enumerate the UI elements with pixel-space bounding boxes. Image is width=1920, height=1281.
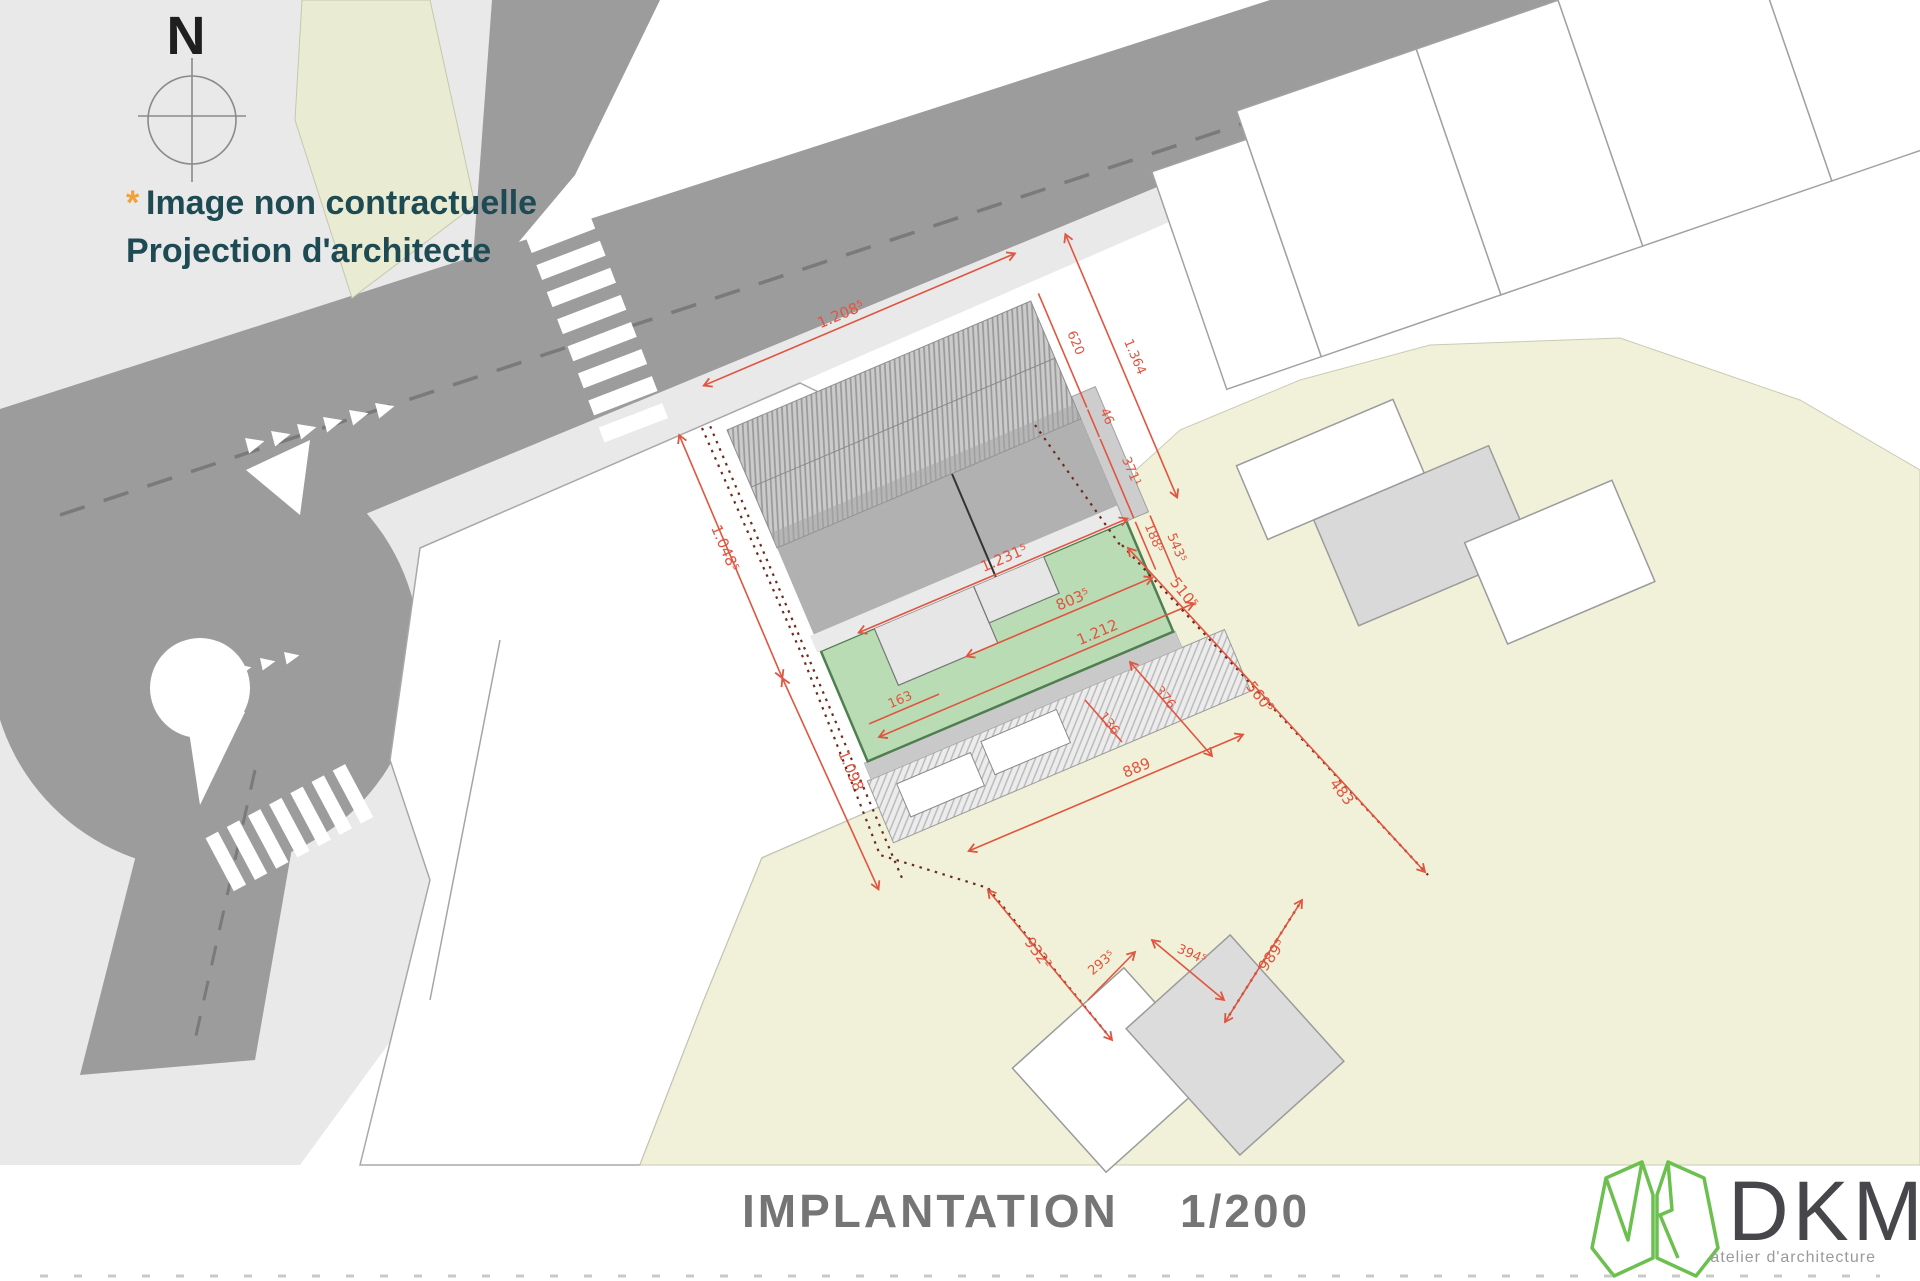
dkm-logo-icon xyxy=(1592,1162,1718,1276)
dimension-label: 1.364 xyxy=(1120,337,1148,377)
logo-subtitle: atelier d'architecture xyxy=(1710,1249,1876,1266)
disclaimer-line1: Image non contractuelle xyxy=(146,184,537,222)
compass-n-label: N xyxy=(167,6,206,66)
dimension-label: 620 xyxy=(1063,329,1087,358)
site-plan-drawing: 1.208⁵ 1.231⁵ 803⁵ 163 1.212 889 1.048⁵ … xyxy=(0,0,1920,1281)
sheet-scale: 1/200 xyxy=(1180,1185,1310,1237)
sheet-title: IMPLANTATION xyxy=(742,1185,1119,1237)
disclaimer-asterisk: * xyxy=(126,184,140,222)
site-plan-sheet: 1.208⁵ 1.231⁵ 803⁵ 163 1.212 889 1.048⁵ … xyxy=(0,0,1920,1281)
disclaimer-line2: Projection d'architecte xyxy=(126,232,491,270)
logo-wordmark: DKM xyxy=(1728,1164,1920,1258)
